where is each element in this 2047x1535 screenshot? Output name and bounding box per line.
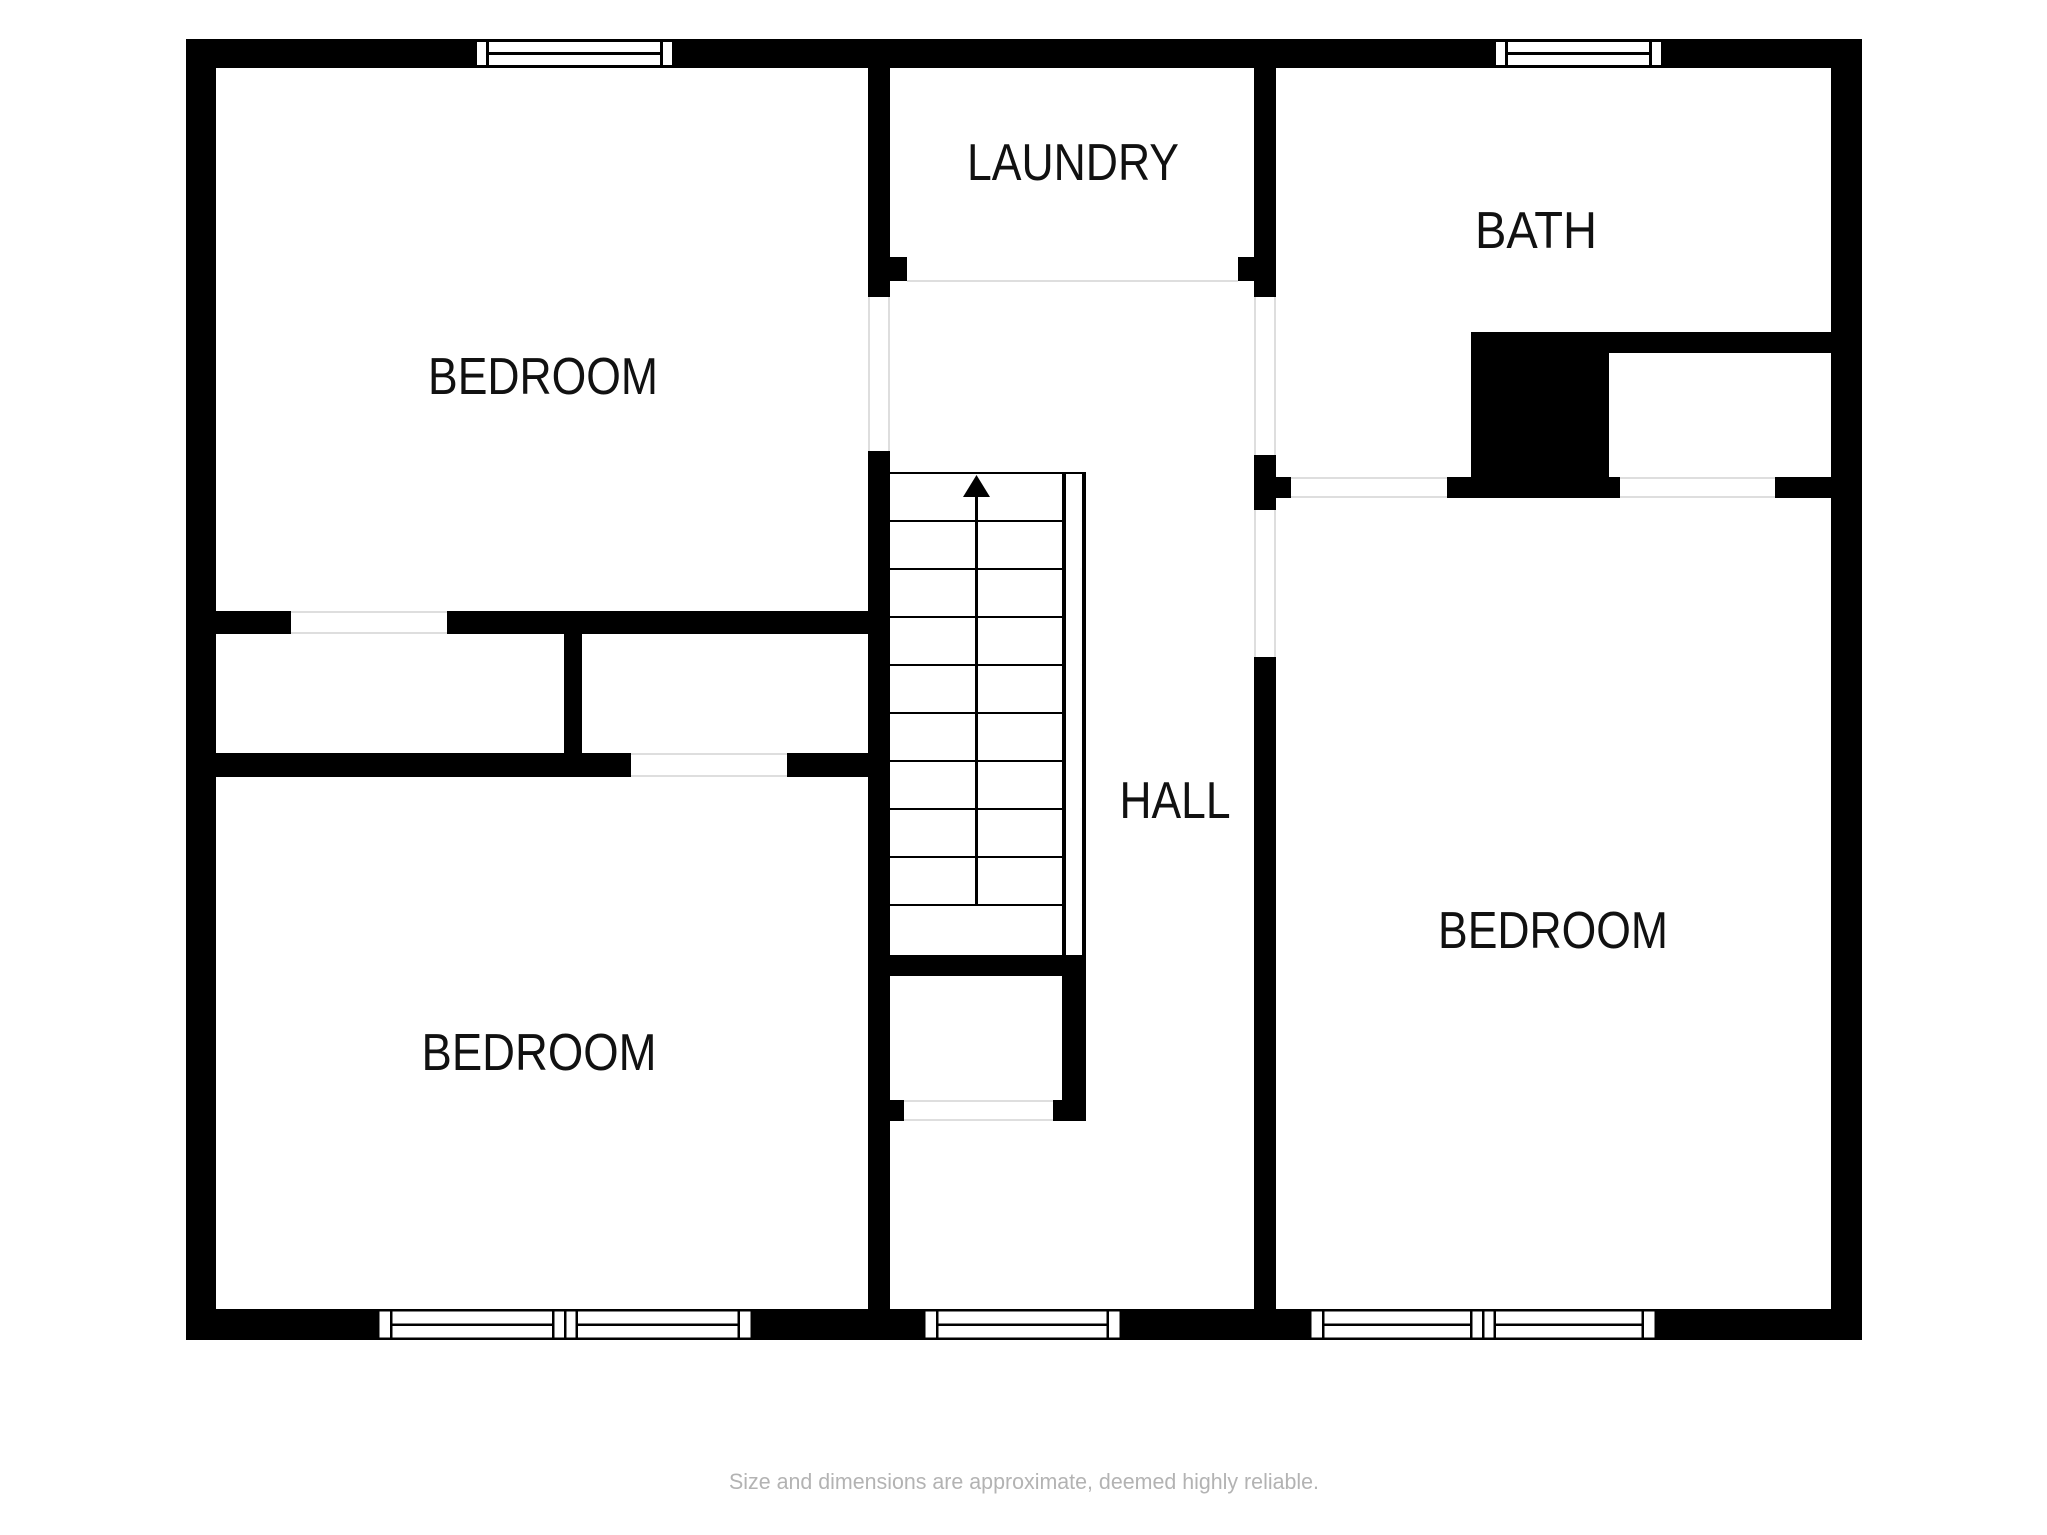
svg-text:BATH: BATH xyxy=(1475,202,1597,260)
svg-text:BEDROOM: BEDROOM xyxy=(422,1024,657,1082)
svg-text:BEDROOM: BEDROOM xyxy=(428,348,658,406)
svg-text:LAUNDRY: LAUNDRY xyxy=(967,134,1179,192)
svg-text:Size and dimensions are approx: Size and dimensions are approximate, dee… xyxy=(729,1469,1319,1494)
svg-text:HALL: HALL xyxy=(1120,772,1231,830)
svg-text:BEDROOM: BEDROOM xyxy=(1438,902,1668,960)
